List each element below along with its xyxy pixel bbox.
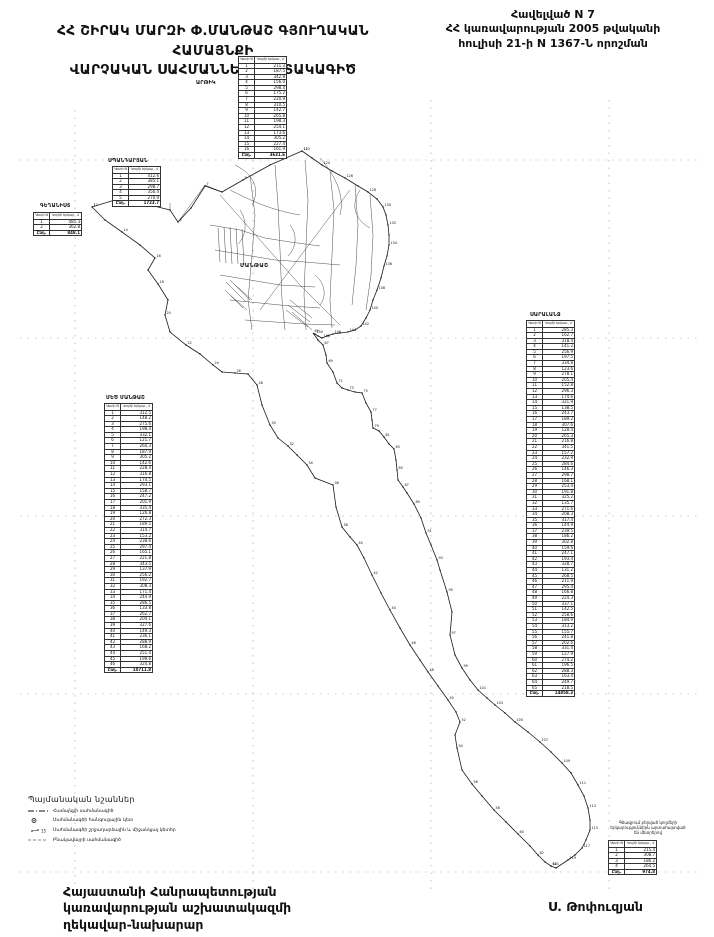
svg-text:12: 12 <box>94 203 98 207</box>
svg-text:138: 138 <box>379 286 385 290</box>
svg-text:62: 62 <box>540 851 544 855</box>
svg-text:36: 36 <box>335 481 339 485</box>
svg-text:101: 101 <box>480 686 486 690</box>
boundary-point-numbers: 1357911121416182022242628303234363840424… <box>94 147 598 866</box>
svg-text:58: 58 <box>496 806 500 810</box>
legend-label: Սահմանագծի շրջադարձային և միջանկյալ կետե… <box>53 828 176 833</box>
svg-text:14: 14 <box>124 228 128 232</box>
svg-text:46: 46 <box>412 641 416 645</box>
svg-text:9: 9 <box>245 176 247 180</box>
svg-text:69: 69 <box>329 359 333 363</box>
signing-office: Հայաստանի Հանրապետության կառավարության ա… <box>63 884 291 933</box>
svg-text:22: 22 <box>188 341 192 345</box>
svg-text:32: 32 <box>290 442 294 446</box>
svg-text:132: 132 <box>390 221 396 225</box>
legend-item-node-point: Սահմանագծի հանգուցային կետ <box>28 817 228 824</box>
coordinate-table: Կետի NԿողմի երկար., մ1312.52148.23275.64… <box>104 403 153 673</box>
coordinate-table-south: Կետի NԿողմի երկար., մ1215.42308.73186.24… <box>608 840 657 875</box>
office-line3: ղեկավար-նախարար <box>63 917 291 933</box>
svg-text:134: 134 <box>391 241 397 245</box>
svg-text:95: 95 <box>449 588 453 592</box>
village-hatched-blocks <box>218 227 312 330</box>
office-line1: Հայաստանի Հանրապետության <box>63 884 291 900</box>
map-note: Գծագրում բերված կողմերի երկարություններն… <box>596 820 700 835</box>
svg-text:93: 93 <box>439 556 443 560</box>
legend-item-community-boundary: Համայնքի սահմանագիծ <box>28 808 228 814</box>
svg-text:128: 128 <box>370 188 376 192</box>
node-point-icon <box>28 817 48 824</box>
legend-title: Պայմանական նշաններ <box>28 795 228 804</box>
svg-text:75: 75 <box>364 389 368 393</box>
svg-text:50: 50 <box>450 696 454 700</box>
settlement-boundary-line-icon <box>28 837 48 843</box>
svg-text:15: 15 <box>41 829 47 834</box>
svg-text:146: 146 <box>335 330 341 334</box>
legend-item-turn-points: 15 Սահմանագծի շրջադարձային և միջանկյալ կ… <box>28 827 228 834</box>
svg-text:79: 79 <box>375 424 379 428</box>
svg-text:136: 136 <box>386 262 392 266</box>
svg-text:140: 140 <box>372 306 378 310</box>
community-boundary-line-icon <box>28 808 48 814</box>
svg-text:97: 97 <box>452 631 456 635</box>
neighbor-label-mets-mantash: ՄԵԾ ՄԱՆԹԱՇ <box>106 395 145 401</box>
svg-text:34: 34 <box>309 461 313 465</box>
coordinate-table-geghanist: Կետի NԿողմի երկար., մ1485.32362.8Ընդ.848… <box>33 212 82 236</box>
legend-label: Համայնքի սահմանագիծ <box>53 809 113 814</box>
neighbor-label-artik: ԱՐԹԻԿ <box>196 80 216 86</box>
coordinate-table-saralanj: Կետի NԿողմի երկար., մ1285.32162.73318.44… <box>526 320 575 697</box>
coordinate-table-mets-mantash: Կետի NԿողմի երկար., մ1312.52148.23275.64… <box>104 403 153 673</box>
svg-text:121: 121 <box>553 862 559 866</box>
svg-text:85: 85 <box>399 466 403 470</box>
svg-text:99: 99 <box>464 664 468 668</box>
svg-text:67: 67 <box>325 341 329 345</box>
svg-text:124: 124 <box>324 161 330 165</box>
svg-text:142: 142 <box>363 322 369 326</box>
svg-text:113: 113 <box>590 804 596 808</box>
svg-text:73: 73 <box>350 386 354 390</box>
coordinate-table: Կետի NԿողմի երկար., մ1412.62385.13298.74… <box>112 166 161 207</box>
svg-text:126: 126 <box>347 174 353 178</box>
community-boundary <box>92 151 590 868</box>
svg-text:103: 103 <box>497 701 503 705</box>
svg-text:56: 56 <box>474 780 478 784</box>
map-note-line3: են մետրերով <box>596 830 700 835</box>
scanned-map-page: ՀՀ ՇԻՐԱԿ ՄԱՐԶԻ Փ.ՄԱՆԹԱՇ ԳՅՈՒՂԱԿԱՆ ՀԱՄԱՅՆ… <box>0 0 714 937</box>
svg-text:87: 87 <box>405 483 409 487</box>
coordinate-table: Կետի NԿողմի երկար., մ1285.32162.73318.44… <box>526 320 575 697</box>
office-line2: կառավարության աշխատակազմի <box>63 900 291 916</box>
svg-text:81: 81 <box>386 433 390 437</box>
svg-text:148: 148 <box>324 334 330 338</box>
village-street-network <box>170 158 373 330</box>
neighbor-label-spandaryan: ՍՊԱՆԴԱՐՅԱՆ <box>108 158 148 164</box>
svg-text:83: 83 <box>396 445 400 449</box>
svg-text:28: 28 <box>259 381 263 385</box>
svg-text:30: 30 <box>272 421 276 425</box>
svg-text:91: 91 <box>428 529 432 533</box>
svg-text:7: 7 <box>207 182 209 186</box>
legend-label: Սահմանագծի հանգուցային կետ <box>53 818 133 823</box>
svg-text:105: 105 <box>517 718 523 722</box>
svg-text:40: 40 <box>359 541 363 545</box>
svg-text:107: 107 <box>542 738 548 742</box>
village-name-label: ՄԱՆԹԱՇ <box>240 263 268 269</box>
svg-text:60: 60 <box>520 830 524 834</box>
coordinate-table: Կետի NԿողմի երկար., մ1215.42308.73186.24… <box>608 840 657 875</box>
turn-point-icon: 15 <box>28 827 48 834</box>
svg-text:117: 117 <box>584 844 590 848</box>
legend-item-settlement-boundary: Բնակավայրի սահմանագիծ <box>28 837 228 843</box>
svg-text:48: 48 <box>430 668 434 672</box>
svg-text:71: 71 <box>339 379 343 383</box>
neighbor-label-saralanj: ՍԱՐԱԼԱՆՋ <box>530 312 561 318</box>
svg-text:5: 5 <box>180 218 182 222</box>
svg-text:16: 16 <box>157 254 161 258</box>
coordinate-table-artik: Կետի NԿողմի երկար., մ1211.32187.53342.84… <box>238 56 287 159</box>
legend: Պայմանական նշաններ Համայնքի սահմանագիծ Ս… <box>28 795 228 846</box>
svg-text:89: 89 <box>416 500 420 504</box>
svg-text:111: 111 <box>580 781 586 785</box>
svg-text:24: 24 <box>215 361 219 365</box>
neighbor-label-geghanist: ԳԵՂԱՆԻՍՏ <box>40 203 71 209</box>
svg-text:20: 20 <box>167 311 171 315</box>
svg-text:52: 52 <box>462 718 466 722</box>
svg-text:18: 18 <box>160 280 164 284</box>
svg-text:109: 109 <box>564 759 570 763</box>
svg-text:38: 38 <box>344 523 348 527</box>
coordinate-table-spandaryan: Կետի NԿողմի երկար., մ1412.62385.13298.74… <box>112 166 161 207</box>
svg-text:119: 119 <box>570 856 576 860</box>
svg-text:44: 44 <box>392 606 396 610</box>
svg-text:77: 77 <box>373 408 377 412</box>
coordinate-table: Կետի NԿողմի երկար., մ1485.32362.8Ընդ.848… <box>33 212 82 236</box>
svg-text:150: 150 <box>317 330 323 334</box>
svg-text:130: 130 <box>385 203 391 207</box>
svg-text:122: 122 <box>304 147 310 151</box>
legend-label: Բնակավայրի սահմանագիծ <box>53 838 121 843</box>
coordinate-table: Կետի NԿողմի երկար., մ1211.32187.53342.84… <box>238 56 287 159</box>
signature-name: Ս. Թոփուզյան <box>548 899 643 914</box>
svg-text:42: 42 <box>374 571 378 575</box>
svg-text:26: 26 <box>237 369 241 373</box>
svg-text:54: 54 <box>459 744 463 748</box>
svg-text:144: 144 <box>350 328 356 332</box>
